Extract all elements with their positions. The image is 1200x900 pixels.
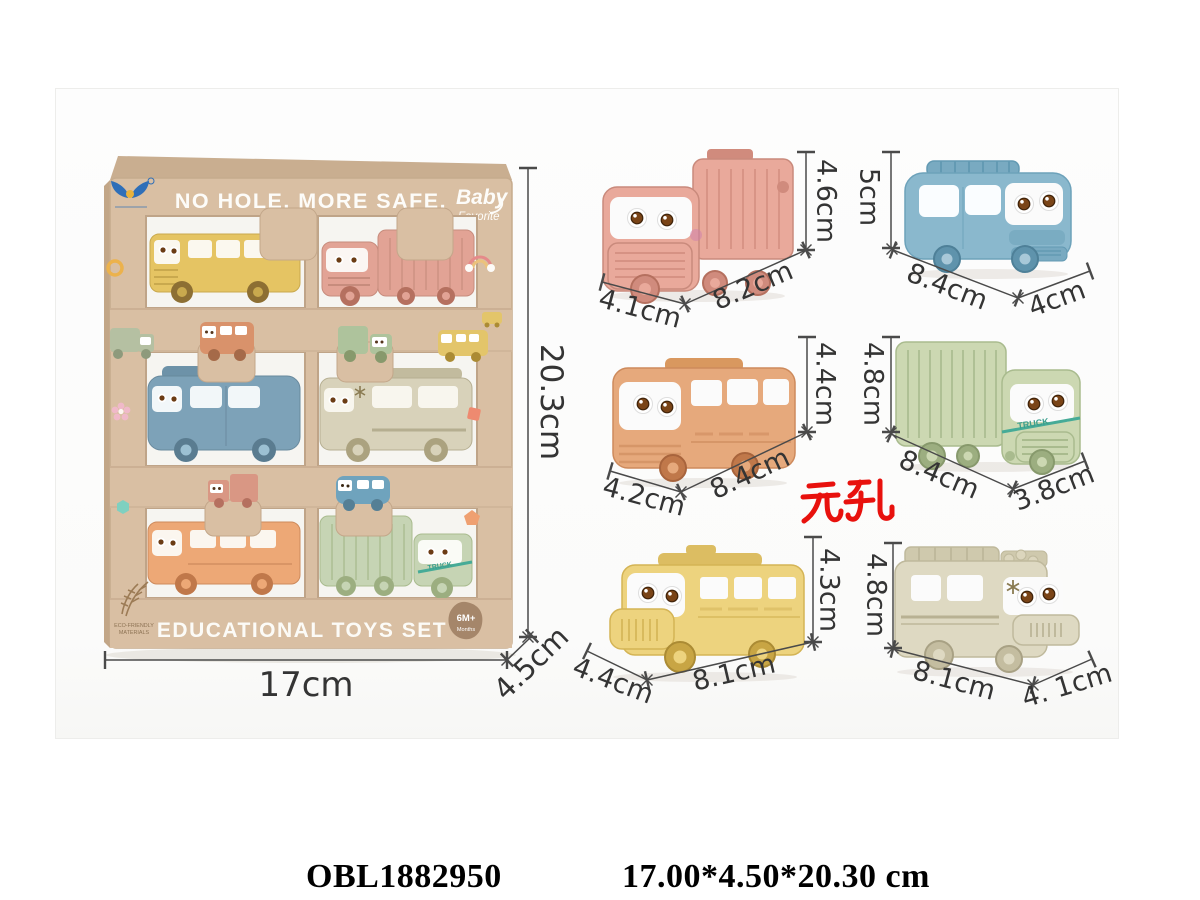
ambulance-height-label: 4.8cm <box>861 553 892 637</box>
eye-icon <box>1040 585 1059 604</box>
box-width-label: 17cm <box>258 665 353 705</box>
windshield <box>610 197 692 239</box>
box-shadow <box>106 647 516 663</box>
eye-icon <box>634 395 653 414</box>
eye-icon <box>1049 392 1068 411</box>
box-top-flap <box>110 156 512 180</box>
age-badge-months-value: 6M+ <box>457 613 476 624</box>
orange-bus-height-label: 4.4cm <box>810 342 841 426</box>
eye-icon <box>1040 192 1059 211</box>
no-hole-annotation-text: 无孔 <box>0 0 1 1</box>
eco-label-line2: MATERIALS <box>119 630 150 636</box>
pink-truck-height-label: 4.6cm <box>811 159 842 243</box>
boxed-beige-ambulance <box>320 368 472 462</box>
eco-label-line1: ECO-FRIENDLY <box>114 623 154 629</box>
square-decoration-icon <box>467 407 481 421</box>
blue-van-height-label: 5cm <box>854 168 885 226</box>
no-hole-annotation <box>800 473 896 529</box>
eye-icon <box>658 398 677 417</box>
eye-icon <box>663 587 682 606</box>
age-badge-months-label: Months <box>457 627 476 633</box>
eye-icon <box>1025 395 1044 414</box>
eye-icon <box>1015 195 1034 214</box>
item-size: 17.00*4.50*20.30 cm <box>622 858 930 896</box>
product-code: OBL1882950 <box>306 858 502 896</box>
product-box-photo: NO HOLE. MORE SAFE. Baby Favorite <box>88 150 528 670</box>
eye-icon <box>628 209 647 228</box>
box-bottom-title: EDUCATIONAL TOYS SET <box>157 619 447 642</box>
eye-icon <box>658 211 677 230</box>
box-height-label: 20.3cm <box>533 344 569 460</box>
eye-icon <box>639 584 658 603</box>
eye-icon <box>1018 588 1037 607</box>
green-truck-height-label: 4.8cm <box>858 342 889 426</box>
box-left-edge <box>104 180 110 648</box>
yellow-bus-height-label: 4.3cm <box>814 548 845 632</box>
